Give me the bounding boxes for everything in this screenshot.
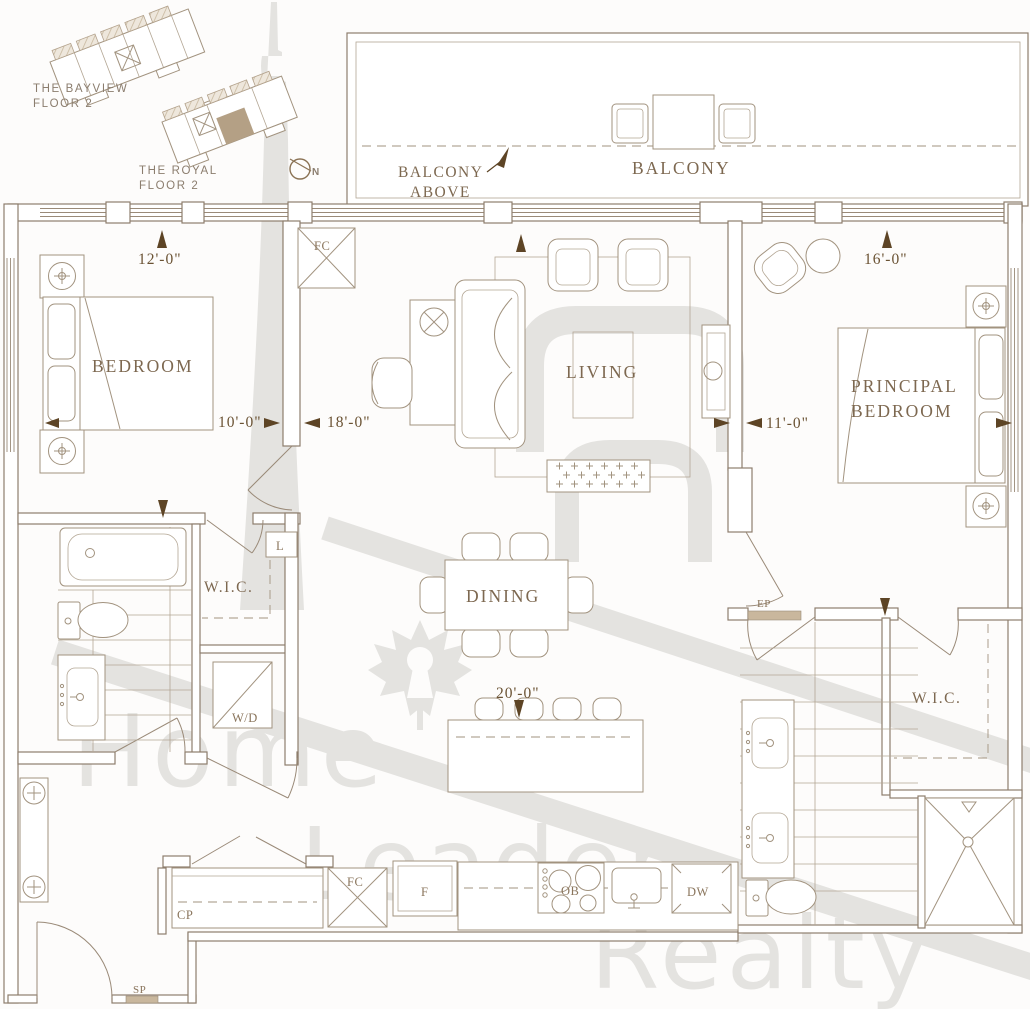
linen-label: L <box>276 539 284 553</box>
cooktop: OB <box>538 863 604 913</box>
bathtub <box>60 528 186 586</box>
north-arrow-icon: N <box>290 159 321 179</box>
living-label: LIVING <box>566 362 638 382</box>
cooktop-label: OB <box>561 884 579 898</box>
dim-bedroom-depth: 12'-0" <box>138 251 182 268</box>
washer-dryer-label: W/D <box>232 711 258 725</box>
console-table <box>20 778 48 902</box>
dim-bedroom-width: 10'-0" <box>218 414 262 431</box>
shower <box>925 798 1014 925</box>
nightstand-1 <box>40 255 84 298</box>
dim-overall-depth: 20'-0" <box>496 685 540 702</box>
wic-right-door <box>898 617 958 655</box>
key-plan-royal-floor: FLOOR 2 <box>139 180 199 192</box>
ensuite-door <box>748 617 815 660</box>
ensuite-vanity <box>742 700 794 878</box>
kitchen-sink <box>612 868 661 908</box>
dishwasher-label: DW <box>687 885 709 899</box>
dim-principal-width: 11'-0" <box>766 415 809 432</box>
key-plan-bayview-floor: FLOOR 2 <box>33 98 93 110</box>
key-plan-royal-name: THE ROYAL <box>139 165 218 177</box>
desk-chair <box>372 358 412 408</box>
wic-left-label: W.I.C. <box>204 579 253 596</box>
wic-right-label: W.I.C. <box>912 690 961 707</box>
fan-coil-top: FC <box>298 228 355 288</box>
north-label: N <box>312 167 321 178</box>
sprinkler-panel <box>126 996 158 1003</box>
vanity-1 <box>58 655 105 740</box>
desk <box>410 300 458 425</box>
kitchen-island <box>448 698 643 792</box>
principal-bedroom: PRINCIPAL BEDROOM <box>748 237 1006 527</box>
floor-plan-page: Home Leader Realty <box>0 0 1030 1009</box>
armchair-1 <box>548 239 598 291</box>
patio-table <box>653 95 714 149</box>
side-table <box>806 239 840 273</box>
reading-chair <box>748 237 811 300</box>
foyer: SP <box>20 778 146 996</box>
fridge-label: F <box>421 885 428 899</box>
nightstand-4 <box>966 486 1006 527</box>
principal-suite-door <box>746 532 783 606</box>
fridge: F <box>393 861 457 916</box>
key-plan-bayview-name: THE BAYVIEW <box>33 83 128 95</box>
balcony-label: BALCONY <box>632 158 731 178</box>
fan-coil-kitchen: FC <box>328 868 387 927</box>
balcony-above-label-1: BALCONY <box>398 164 483 181</box>
nightstand-3 <box>966 286 1006 327</box>
principal-label-2: BEDROOM <box>851 401 953 421</box>
dining-label: DINING <box>466 586 540 606</box>
armchair-2 <box>618 239 668 291</box>
dim-principal-depth: 16'-0" <box>864 251 908 268</box>
fan-coil-top-label: FC <box>314 239 330 253</box>
dishwasher: DW <box>672 864 731 913</box>
coat-closet-label: CP <box>177 908 193 922</box>
bedroom: BEDROOM <box>40 255 213 473</box>
dim-living-width: 18'-0" <box>327 414 371 431</box>
key-plan-bayview-building <box>46 0 207 112</box>
electrical-panel <box>748 611 801 620</box>
bedroom-label: BEDROOM <box>92 356 194 376</box>
sofa <box>455 280 525 448</box>
tv-unit <box>702 325 730 418</box>
toilet-1 <box>58 602 128 639</box>
patio-chair-right <box>719 104 755 143</box>
balcony: BALCONY BALCONY ABOVE <box>347 33 1028 206</box>
laundry-closet: W/D <box>213 662 272 728</box>
logo-arch-outer <box>530 320 730 452</box>
balcony-above-label-2: ABOVE <box>410 184 471 201</box>
sprinkler-label: SP <box>133 984 146 996</box>
nightstand-2 <box>40 430 84 473</box>
entry-door <box>37 922 112 998</box>
electrical-panel-label: EP <box>757 598 771 610</box>
principal-label-1: PRINCIPAL <box>851 376 958 396</box>
patio-chair-left <box>612 104 648 143</box>
rug <box>547 460 650 492</box>
fan-coil-kitchen-label: FC <box>347 875 363 889</box>
coat-closet: CP <box>172 868 323 928</box>
toilet-2 <box>746 880 816 916</box>
